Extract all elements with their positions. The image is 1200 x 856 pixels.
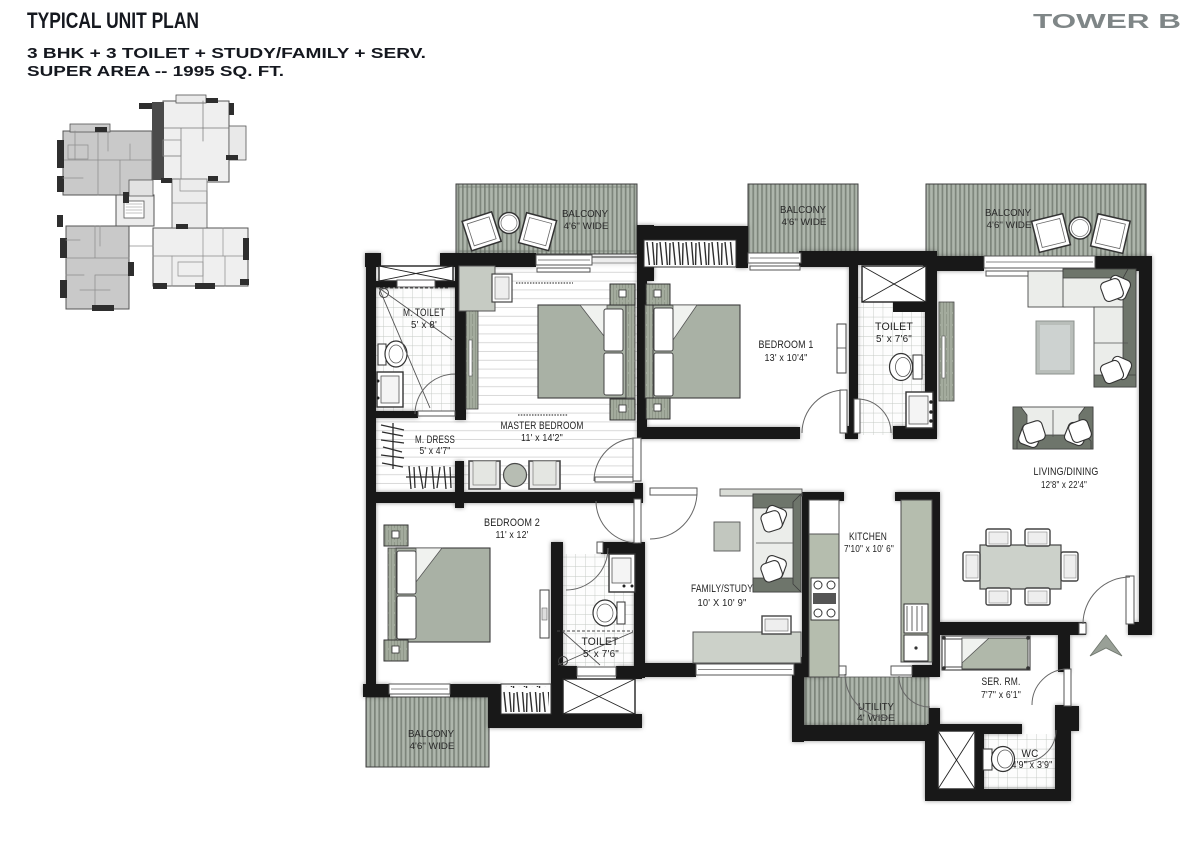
svg-text:M. DRESS: M. DRESS [415, 434, 455, 446]
svg-text:TOWER B: TOWER B [1033, 11, 1181, 33]
svg-text:4'6" WIDE: 4'6" WIDE [410, 741, 455, 752]
svg-text:WC: WC [1022, 748, 1039, 760]
svg-text:13' x 10'4": 13' x 10'4" [765, 353, 808, 364]
svg-text:5' x 7'6": 5' x 7'6" [876, 334, 912, 345]
svg-text:TYPICAL UNIT PLAN: TYPICAL UNIT PLAN [27, 8, 199, 33]
svg-text:7'10" x 10' 6": 7'10" x 10' 6" [844, 544, 894, 555]
svg-text:7'7" x 6'1": 7'7" x 6'1" [981, 690, 1021, 701]
svg-text:BALCONY: BALCONY [985, 208, 1031, 219]
svg-text:BALCONY: BALCONY [408, 729, 454, 740]
svg-text:M. TOILET: M. TOILET [403, 307, 445, 319]
svg-text:TOILET: TOILET [875, 321, 913, 333]
svg-text:5' x 8': 5' x 8' [411, 320, 437, 331]
svg-text:11' x 14'2": 11' x 14'2" [521, 433, 563, 444]
svg-text:FAMILY/STUDY: FAMILY/STUDY [691, 583, 753, 595]
svg-text:LIVING/DINING: LIVING/DINING [1034, 466, 1099, 478]
svg-text:KITCHEN: KITCHEN [849, 531, 887, 543]
svg-text:BEDROOM 1: BEDROOM 1 [759, 339, 814, 351]
svg-text:UTILITY: UTILITY [858, 702, 894, 713]
svg-text:10' X 10' 9": 10' X 10' 9" [698, 598, 747, 609]
svg-text:4' WIDE: 4' WIDE [857, 713, 895, 724]
svg-text:SER. RM.: SER. RM. [982, 676, 1021, 688]
svg-text:5' x 7'6": 5' x 7'6" [583, 649, 619, 660]
svg-text:11' x 12': 11' x 12' [496, 530, 529, 541]
svg-text:12'8" x 22'4": 12'8" x 22'4" [1041, 480, 1087, 491]
svg-text:3 BHK + 3 TOILET + STUDY/FAMIL: 3 BHK + 3 TOILET + STUDY/FAMILY + SERV. [27, 46, 426, 62]
svg-text:4'6" WIDE: 4'6" WIDE [564, 221, 609, 232]
svg-text:TOILET: TOILET [582, 636, 619, 648]
svg-text:4'6" WIDE: 4'6" WIDE [987, 220, 1032, 231]
svg-text:BALCONY: BALCONY [562, 209, 608, 220]
svg-text:5' x 4'7": 5' x 4'7" [420, 446, 451, 457]
svg-text:BEDROOM 2: BEDROOM 2 [484, 517, 540, 529]
svg-text:BALCONY: BALCONY [780, 205, 826, 216]
svg-text:4'9" x 3'9": 4'9" x 3'9" [1012, 760, 1053, 771]
svg-text:4'6" WIDE: 4'6" WIDE [782, 217, 827, 228]
svg-text:MASTER BEDROOM: MASTER BEDROOM [501, 420, 584, 432]
svg-text:SUPER AREA -- 1995 SQ. FT.: SUPER AREA -- 1995 SQ. FT. [27, 64, 284, 80]
